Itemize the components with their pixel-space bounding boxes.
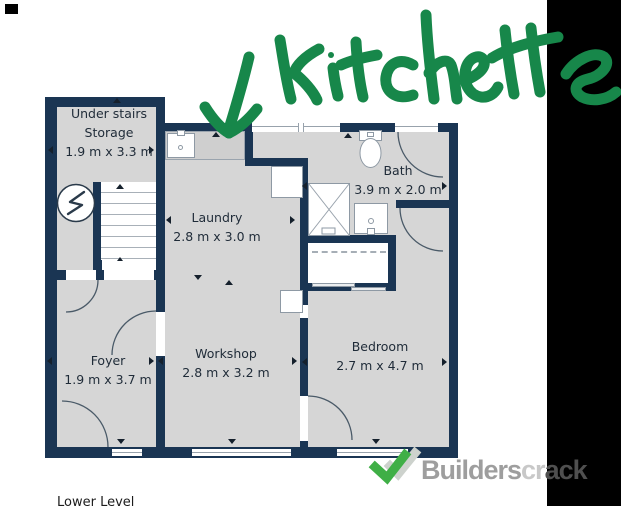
dimension-marker — [344, 133, 352, 138]
room-name: Bedroom — [320, 337, 440, 356]
vanity-tap — [367, 228, 375, 235]
wall-stair-overhead-right — [388, 238, 396, 291]
window-bottom-foyer — [112, 449, 142, 456]
lower-level-label: Lower Level — [57, 495, 134, 506]
annotation-arrow — [229, 57, 249, 129]
room-name: Under stairs — [57, 104, 161, 123]
opening-storage-door — [66, 270, 96, 280]
room-dims: 2.7 m x 4.7 m — [320, 356, 440, 375]
room-label-laundry: Laundry 2.8 m x 3.0 m — [152, 208, 282, 246]
corner-mark — [5, 4, 18, 14]
window-bottom-bedroom — [337, 449, 408, 456]
room-name: Bath — [336, 161, 460, 180]
appliance-workshop — [280, 290, 303, 313]
laundry-sink-tap — [177, 130, 185, 136]
brand-text-dark: ack — [545, 455, 587, 485]
wall-hall-right — [396, 200, 449, 208]
room-name: Workshop — [166, 344, 286, 363]
dashed-stair-outline — [312, 251, 386, 253]
sliding-door-panel — [312, 283, 355, 287]
room-label-bedroom: Bedroom 2.7 m x 4.7 m — [320, 337, 440, 375]
room-name: Foyer — [48, 351, 168, 370]
sliding-door-panel — [351, 287, 386, 291]
room-label-bath: Bath 3.9 m x 2.0 m — [336, 161, 460, 199]
window-top-laundry — [252, 123, 340, 132]
dimension-marker — [292, 357, 297, 365]
dimension-marker — [212, 132, 220, 137]
annotation-text: kitchette — [0, 0, 1, 1]
room-name: Storage — [57, 123, 161, 142]
dimension-marker — [442, 358, 447, 366]
floorplan-screenshot: Under stairs Storage 1.9 m x 3.3 m Laund… — [0, 0, 621, 506]
stair-direction-arrow — [116, 184, 124, 189]
dimension-marker — [228, 439, 236, 444]
dimension-marker — [117, 439, 125, 444]
black-sidebar — [547, 0, 621, 506]
room-dims: 2.8 m x 3.2 m — [166, 363, 286, 382]
dimension-marker — [225, 280, 233, 285]
brand-text-light: cr — [521, 455, 545, 485]
window-mullion — [298, 123, 304, 132]
room-label-foyer: Foyer 1.9 m x 3.7 m — [48, 351, 168, 389]
opening-stair-landing — [104, 270, 154, 280]
dimension-marker — [302, 358, 307, 366]
dimension-marker — [290, 216, 295, 224]
wall-bath-bottom — [300, 235, 396, 243]
brand-text-main: Builders — [421, 455, 521, 485]
room-label-storage: Under stairs Storage 1.9 m x 3.3 m — [57, 104, 161, 161]
dimension-marker — [48, 146, 53, 154]
stair-overhead-area — [308, 243, 388, 283]
opening-foyer-workshop — [156, 312, 165, 356]
opening-bedroom-door — [300, 396, 308, 441]
check-front — [375, 455, 405, 478]
room-dims: 1.9 m x 3.3 m — [57, 142, 161, 161]
room-dims: 3.9 m x 2.0 m — [336, 180, 460, 199]
staircase — [101, 182, 156, 260]
window-top-bath — [395, 123, 438, 132]
window-bottom-workshop — [192, 449, 291, 456]
laundry-sink-drain — [178, 145, 183, 150]
dimension-marker — [194, 275, 202, 280]
dimension-marker — [302, 182, 307, 190]
dimension-marker — [113, 98, 121, 103]
room-dims: 2.8 m x 3.0 m — [152, 227, 282, 246]
stair-start-arrow — [117, 257, 123, 261]
appliance-laundry — [271, 166, 303, 198]
room-name: Laundry — [152, 208, 282, 227]
watermark-logo: Builderscrack — [421, 455, 587, 487]
room-dims: 1.9 m x 3.7 m — [48, 370, 168, 389]
room-label-workshop: Workshop 2.8 m x 3.2 m — [166, 344, 286, 382]
vanity-drain — [368, 218, 374, 224]
dimension-marker — [372, 439, 380, 444]
toilet-button — [367, 132, 374, 137]
